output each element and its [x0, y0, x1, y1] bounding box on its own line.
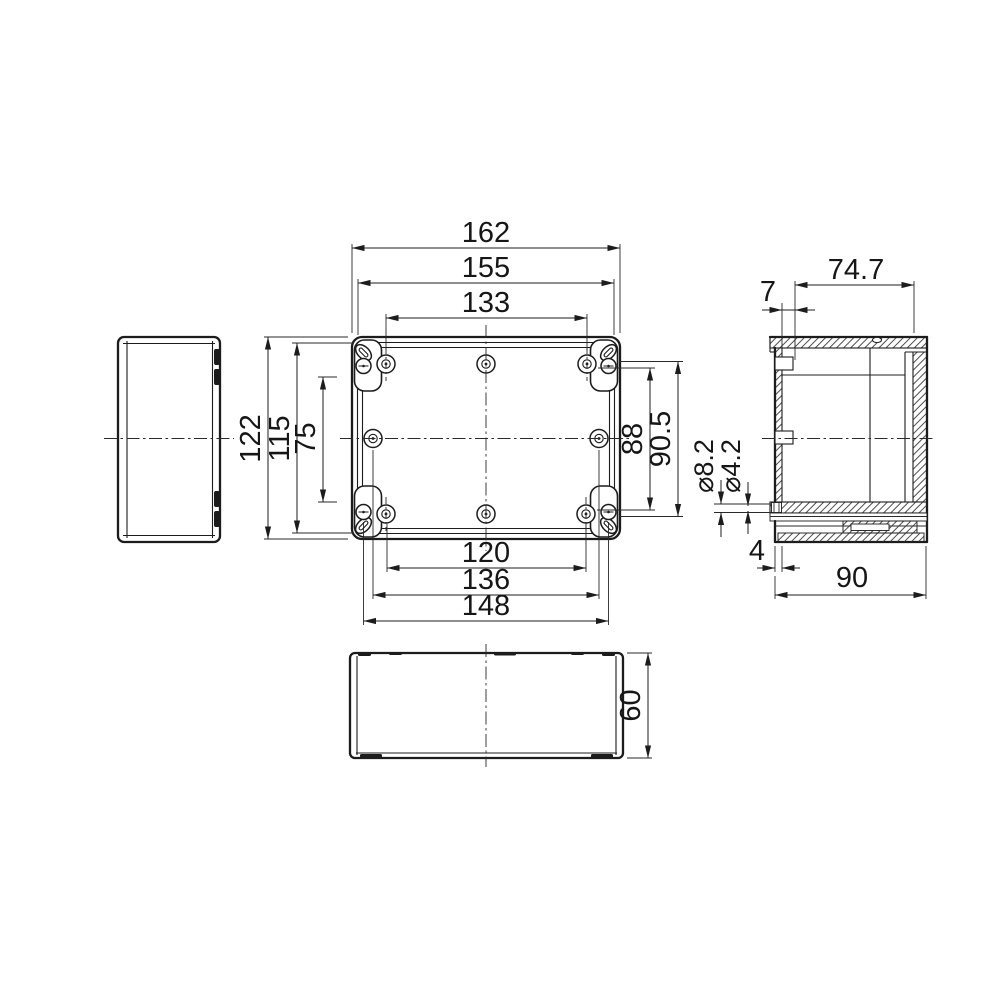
- dim-depth-total: 90: [836, 562, 868, 594]
- dim-depth-upper: 74.7: [828, 254, 884, 286]
- top-view: [340, 325, 632, 551]
- front-view-body: [350, 653, 623, 758]
- dim-flange-hole-outer: ⌀8.2: [689, 439, 719, 493]
- front-view-seam-marks: [358, 652, 615, 758]
- front-view: [350, 644, 623, 767]
- dim-lug-span-right: 90.5: [645, 411, 677, 467]
- side-view: [104, 337, 234, 542]
- dim-total-width: 162: [462, 217, 510, 249]
- dim-hole-span-left: 75: [290, 422, 322, 454]
- dim-lug-span-bottom: 148: [462, 590, 510, 622]
- dimensions-section-view: 74.7 7 ⌀8.2 ⌀4.2 4 90: [689, 254, 926, 599]
- enclosure-dimension-drawing: 162 155 133 122 115 75 88 90.5: [0, 0, 1000, 1000]
- dimensions-front-view: 60: [615, 653, 652, 758]
- dim-total-height: 122: [235, 414, 267, 462]
- section-base-hatch: [778, 533, 924, 542]
- dim-front-height: 60: [615, 689, 647, 721]
- dimensions-top-view: 162 155 133 122 115 75 88 90.5: [235, 217, 683, 625]
- dim-lip-offset: 7: [760, 276, 776, 308]
- dim-flange-offset: 4: [749, 535, 765, 567]
- section-lid: [770, 337, 927, 348]
- section-left-tab-lower: [775, 431, 793, 444]
- dim-hole-span-top: 133: [462, 287, 510, 319]
- side-view-body: [118, 337, 220, 542]
- technical-drawing-page: 162 155 133 122 115 75 88 90.5: [0, 0, 1000, 1000]
- section-flange: [770, 502, 927, 513]
- dim-flange-hole-inner: ⌀4.2: [716, 439, 746, 493]
- section-view: [762, 337, 936, 542]
- hole-centermarks: [386, 347, 587, 531]
- section-left-tab-upper: [775, 357, 793, 370]
- dim-lid-width: 155: [462, 252, 510, 284]
